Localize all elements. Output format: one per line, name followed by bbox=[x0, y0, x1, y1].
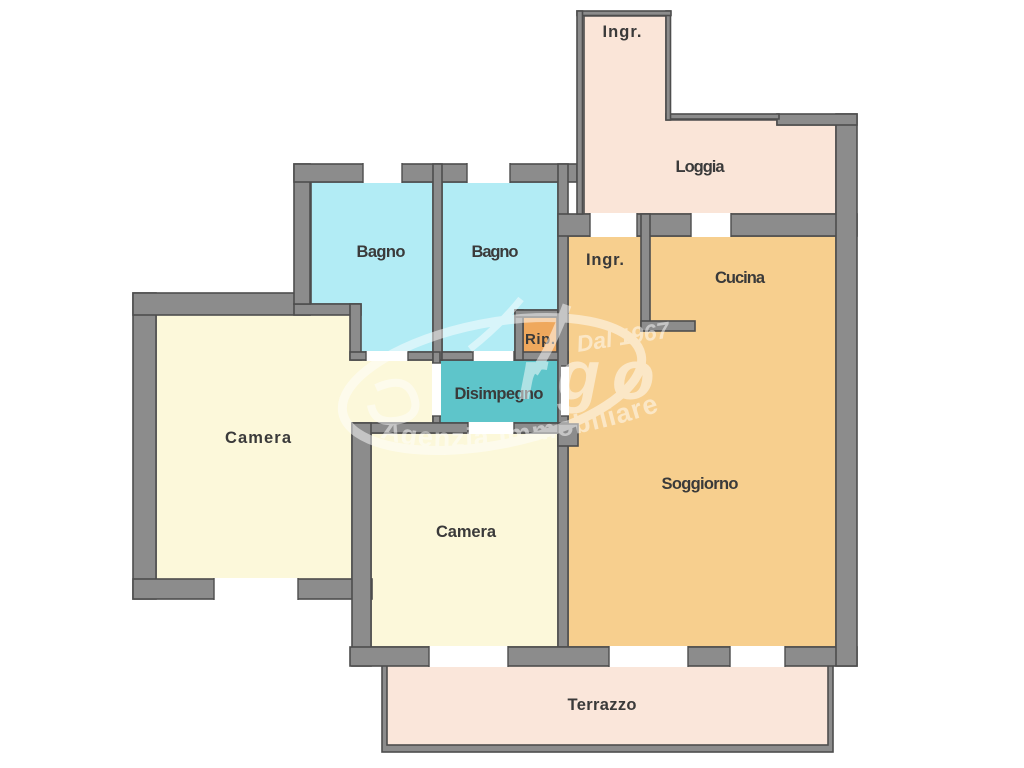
svg-text:Bagno: Bagno bbox=[472, 243, 519, 261]
svg-text:Ingr.: Ingr. bbox=[586, 251, 624, 269]
svg-text:Soggiorno: Soggiorno bbox=[662, 475, 739, 493]
svg-text:Terrazzo: Terrazzo bbox=[568, 696, 637, 714]
svg-text:Bagno: Bagno bbox=[357, 243, 406, 261]
svg-text:Camera: Camera bbox=[436, 523, 497, 541]
svg-text:Cucina: Cucina bbox=[715, 269, 766, 287]
svg-text:Loggia: Loggia bbox=[676, 158, 726, 176]
svg-text:Ingr.: Ingr. bbox=[603, 23, 642, 41]
svg-text:Camera: Camera bbox=[225, 429, 292, 447]
